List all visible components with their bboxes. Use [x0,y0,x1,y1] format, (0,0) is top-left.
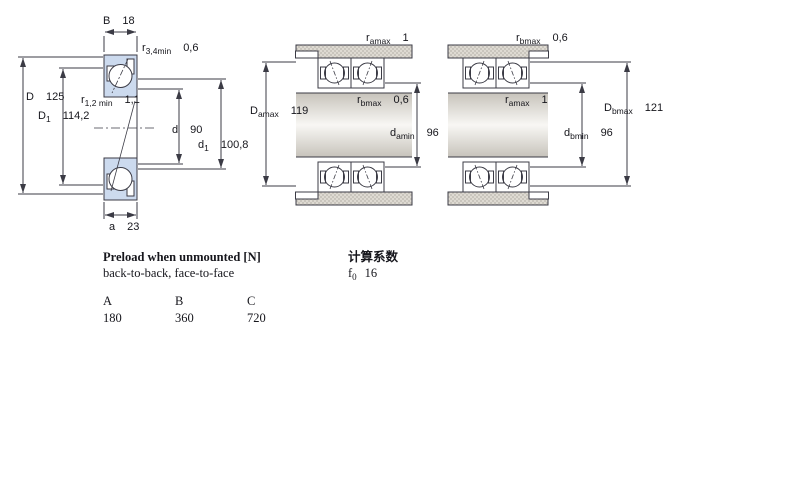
dim-value: 16 [365,266,378,280]
dim-label-d: d90 [172,124,202,137]
bearing-drawing-page: B18 r3,4min0,6 D125 D1114,2 r1,2 min1,1 … [0,0,800,500]
preload-col-header: A [103,294,175,308]
arrangement-view-a [262,45,421,205]
dim-sub: amax [258,109,279,119]
preload-col-header: C [247,294,319,308]
dim-value: 0,6 [393,94,408,106]
dim-label-d1: d1100,8 [198,139,248,152]
dim-base: B [103,15,110,27]
dim-sub: amin [396,131,414,141]
dim-value: 1 [402,32,408,44]
dim-value: 18 [122,15,134,27]
preload-subtitle: back-to-back, face-to-face [103,266,234,281]
dim-value: 0,6 [183,42,198,54]
dim-value: 121 [645,102,663,114]
dim-value: 1,1 [125,94,140,106]
dim-label-rbmax-b: rbmax0,6 [516,32,568,45]
dim-sub: bmax [520,36,541,46]
dim-value: 96 [601,127,613,139]
dim-sub: bmin [570,131,588,141]
dim-base: D [26,91,34,103]
dim-label-ramax-a: ramax1 [366,32,409,45]
dim-sub: bmax [361,98,382,108]
dim-sub: bmax [612,106,633,116]
dim-base: d [172,124,178,136]
dim-label-Damax: Damax119 [250,105,308,118]
dim-label-B: B18 [103,15,135,28]
dim-value: 119 [291,105,309,117]
preload-value: 180 [103,311,175,325]
dim-base: D [604,102,612,114]
dim-base: a [109,221,115,233]
dim-value: 1 [541,94,547,106]
dim-label-Dbmax: Dbmax121 [604,102,663,115]
preload-value: 360 [175,311,247,325]
dim-sub: amax [370,36,391,46]
dim-label-ramax-b: ramax1 [505,94,548,107]
dim-value: 125 [46,91,64,103]
calc-factor-title: 计算系数 [348,250,398,265]
dim-sub: 3,4min [146,46,172,56]
dim-label-D1: D1114,2 [38,110,89,123]
dim-sub: 1,2 min [85,98,113,108]
dim-sub: amax [509,98,530,108]
dim-label-D: D125 [26,91,64,104]
dim-label-r34min: r3,4min0,6 [142,42,198,55]
dim-value: 114,2 [63,110,90,122]
dim-label-dbmin: dbmin96 [564,127,613,140]
preload-title: Preload when unmounted [N] [103,250,261,265]
dim-label-damin: damin96 [390,127,439,140]
preload-value: 720 [247,311,319,325]
dim-label-r12min: r1,2 min1,1 [81,94,140,107]
dim-label-rbmax-a: rbmax0,6 [357,94,409,107]
dim-value: 90 [190,124,202,136]
dim-sub: 1 [46,114,51,124]
dim-value: 96 [427,127,439,139]
dim-base: D [38,110,46,122]
arrangement-view-b [448,45,631,205]
dim-label-a: a23 [109,221,139,234]
dim-value: 23 [127,221,139,233]
dim-base: D [250,105,258,117]
dim-sub: 0 [352,272,357,282]
dim-sub: 1 [204,143,209,153]
dim-label-f0: f016 [348,266,377,282]
preload-col-header: B [175,294,247,308]
dim-value: 100,8 [221,139,249,151]
dim-value: 0,6 [552,32,567,44]
preload-table: A B C 180 360 720 [103,294,319,325]
